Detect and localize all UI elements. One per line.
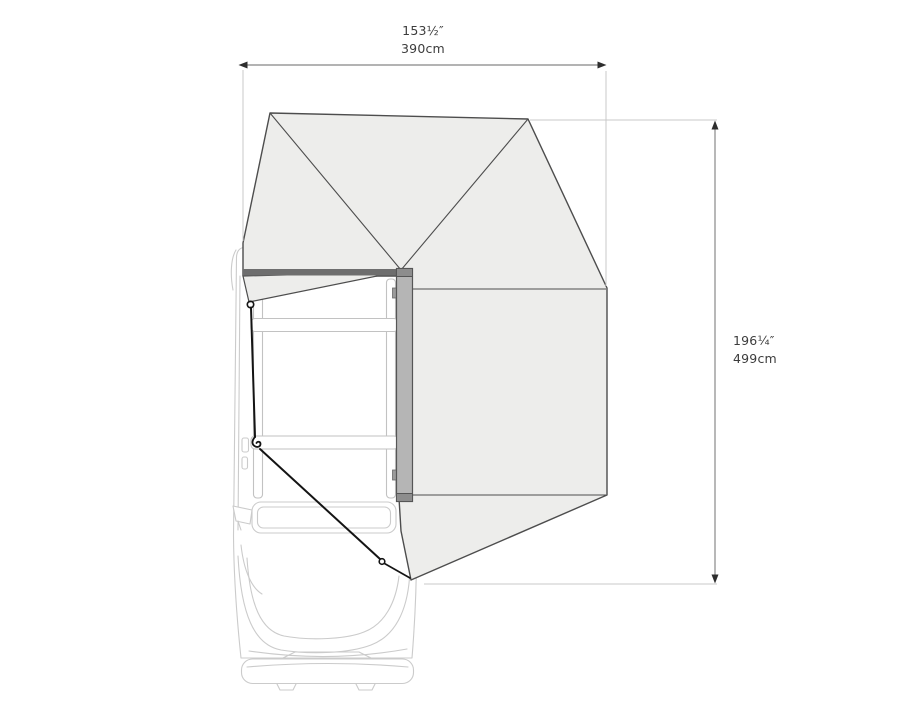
door-handle [242,457,248,469]
diagram-canvas: 153½″ 390cm 196¼″ 499cm [0,0,905,704]
door-handle [242,438,249,452]
width-metric-value: 390cm [353,40,493,58]
height-imperial-value: 196¼″ [733,332,777,350]
rack-crossbar [251,436,398,449]
front-bumper [242,659,414,684]
rack-rail-left [254,279,263,498]
rack-crossbar [251,319,398,332]
width-imperial-value: 153½″ [353,22,493,40]
bracket-cap-bottom [397,494,413,502]
roof-mount-bar [243,269,399,276]
width-dimension-label: 153½″ 390cm [353,22,493,58]
rack-rail-right [387,279,396,498]
mounting-bracket [397,269,413,502]
height-metric-value: 499cm [733,350,777,368]
height-dimension-label: 196¼″ 499cm [733,332,777,368]
bracket-cap-top [397,269,413,277]
